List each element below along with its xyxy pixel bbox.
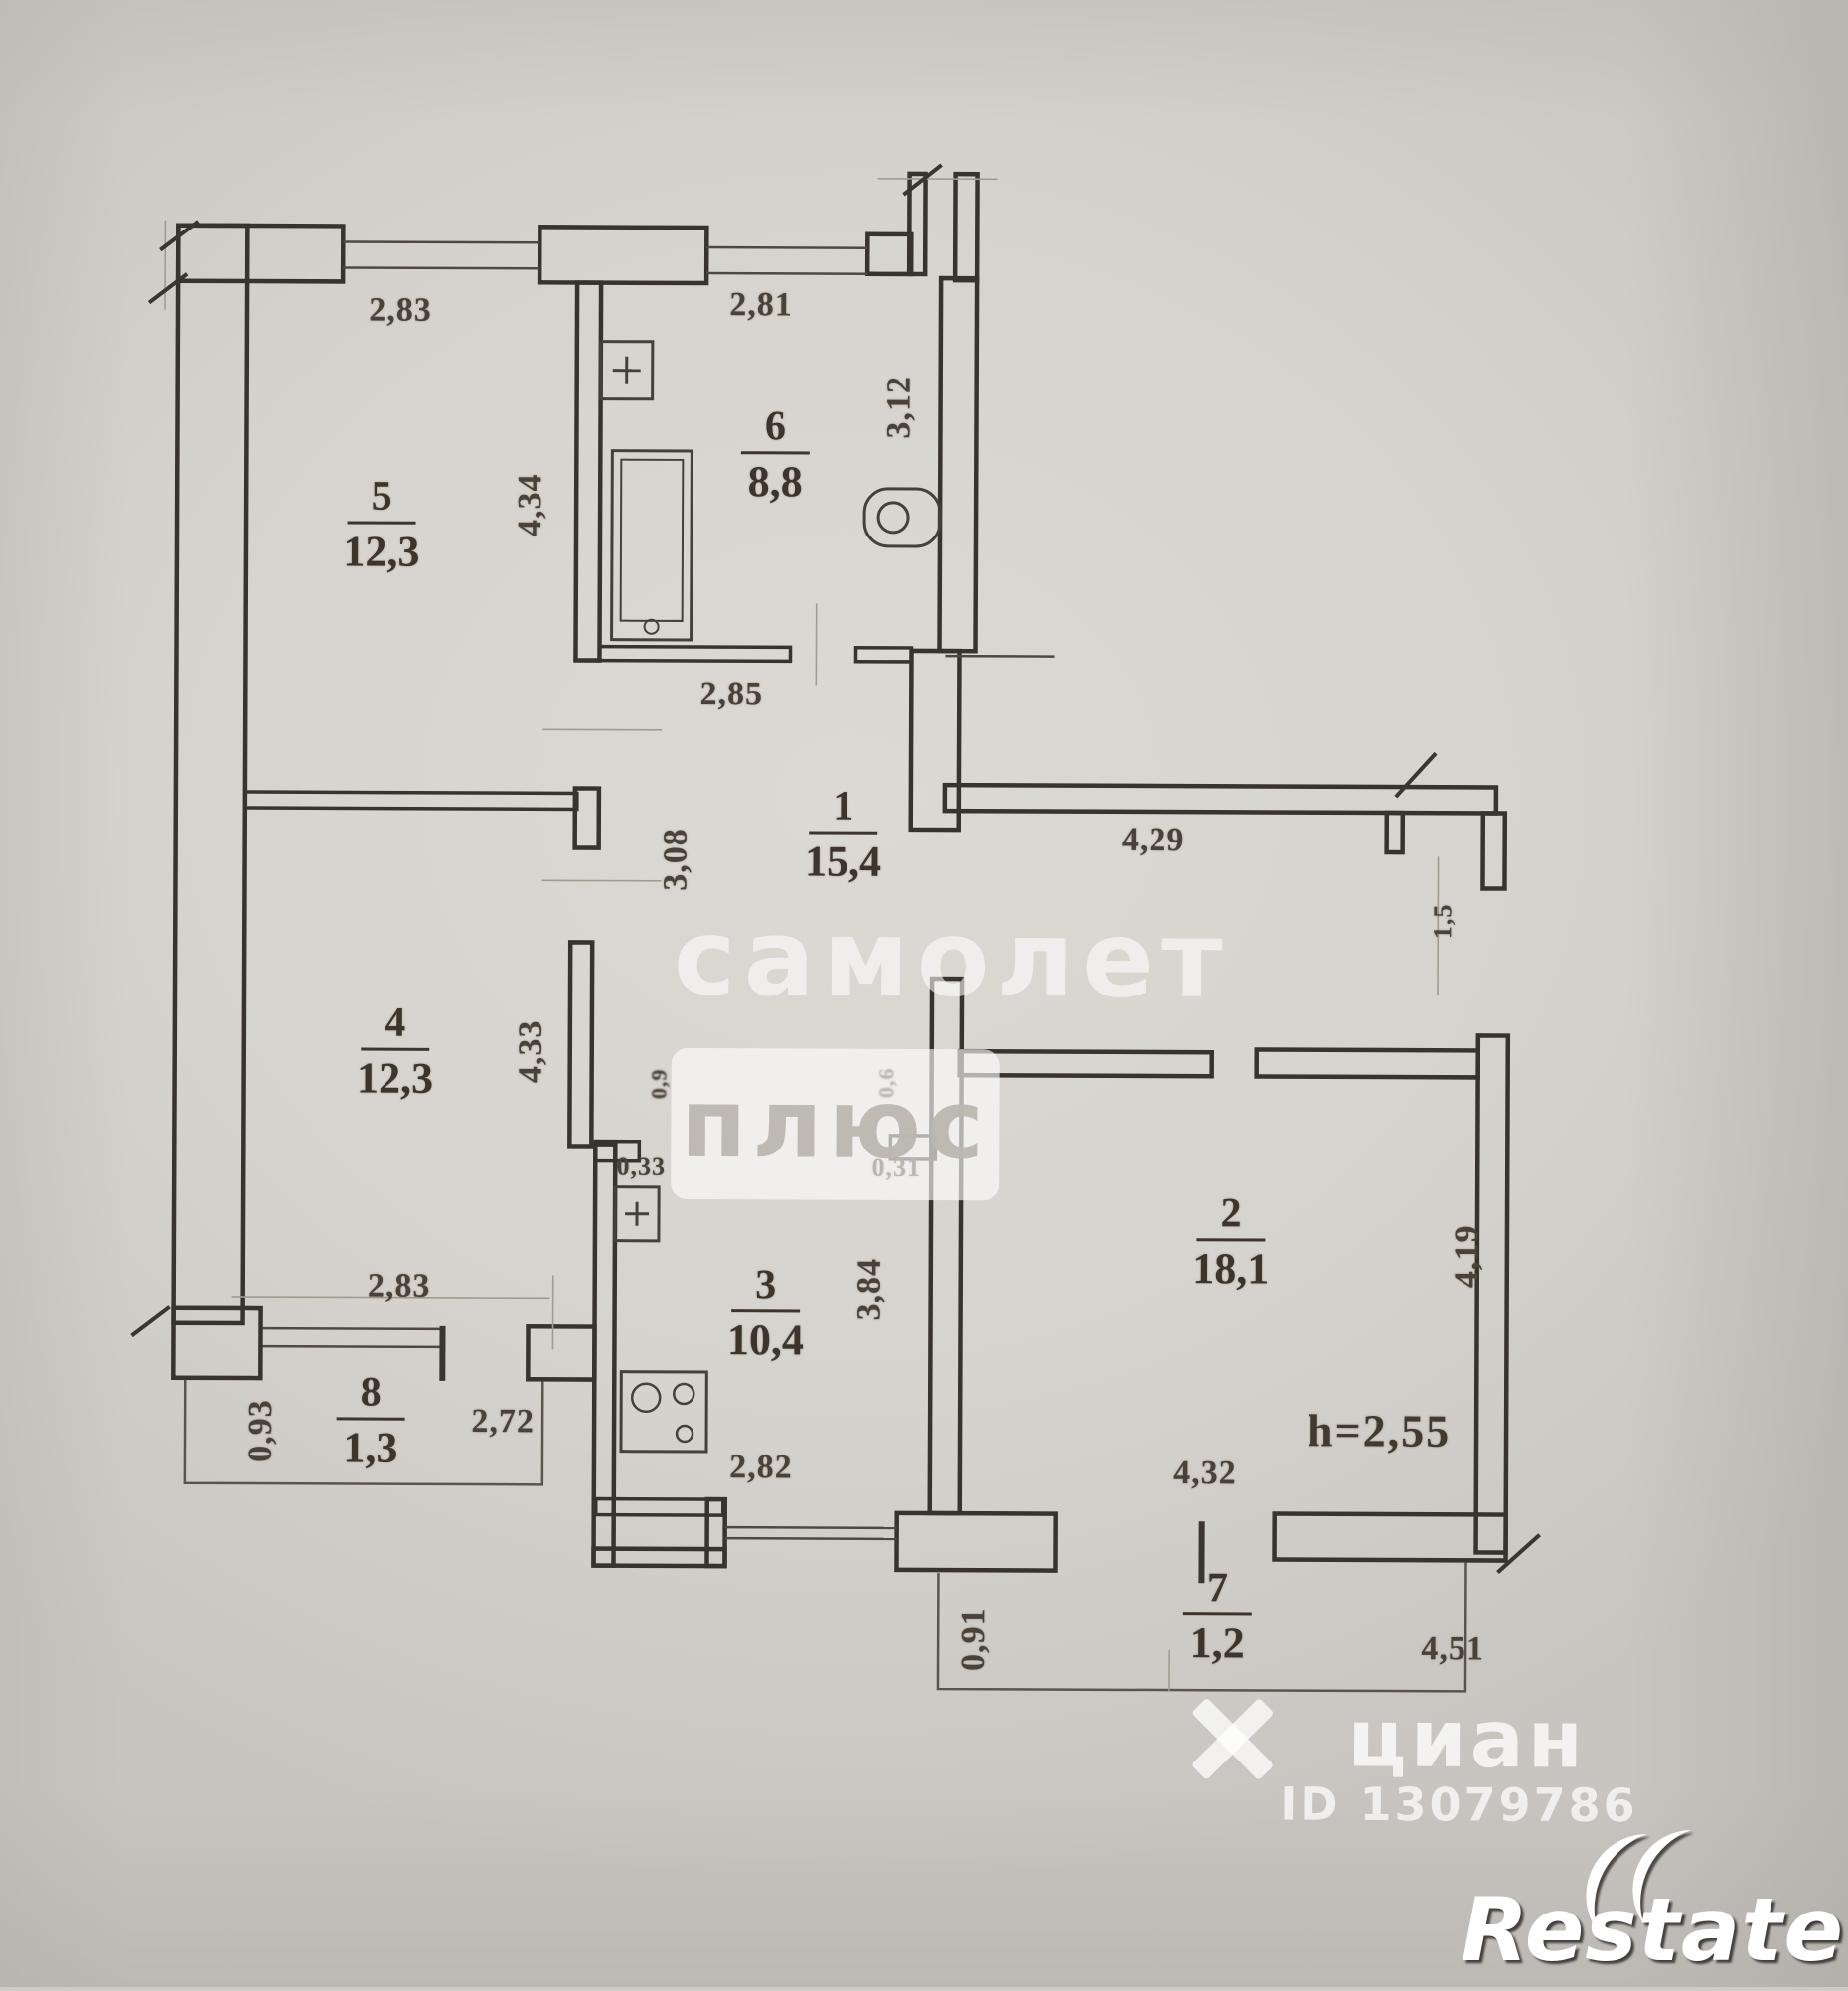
wall	[1387, 813, 1403, 852]
restate-wordmark: Restate	[1461, 1879, 1844, 1981]
room-4-area: 12,3	[357, 1051, 433, 1104]
dim-kitchen-stub-left: 0,33	[616, 1152, 666, 1182]
room-3-area: 10,4	[727, 1312, 804, 1365]
room-6-label: 6 8,8	[741, 404, 810, 507]
room-2-number: 2	[1196, 1191, 1265, 1241]
room-3-number: 3	[731, 1263, 800, 1312]
window	[706, 273, 867, 274]
room-2-area: 18,1	[1192, 1241, 1269, 1294]
wall	[945, 785, 1496, 813]
window	[725, 1538, 897, 1539]
dim-balcony8-bottom: 2,72	[471, 1403, 535, 1441]
room-6-number: 6	[741, 404, 810, 454]
window	[725, 1527, 897, 1528]
wall	[1482, 813, 1504, 888]
dim-hallway-top: 4,29	[1122, 822, 1185, 859]
dim-room2-side: 4,19	[1449, 1225, 1486, 1289]
dim-room6-top: 2,81	[729, 286, 793, 324]
tick	[149, 274, 187, 303]
window	[262, 1346, 445, 1347]
kitchen-sink	[615, 1187, 659, 1241]
dim-balcony8-side: 0,93	[242, 1399, 280, 1462]
wall	[173, 1308, 260, 1378]
floor-plan: 5 12,3 6 8,8 1 15,4 4 12,3 2 18,1 3 10,4…	[0, 0, 1848, 1991]
room-5-number: 5	[348, 474, 416, 524]
ceiling-height-label: h=2,55	[1308, 1404, 1452, 1457]
tick	[1396, 753, 1436, 797]
room-7-area: 1,2	[1183, 1615, 1252, 1668]
room-6-area: 8,8	[741, 454, 810, 507]
dim-room2-bottom: 4,32	[1173, 1455, 1237, 1492]
window	[706, 247, 867, 248]
room-8-area: 1,3	[336, 1421, 404, 1473]
room-1-label: 1 15,4	[805, 784, 881, 886]
room-2-label: 2 18,1	[1192, 1191, 1269, 1294]
dim-room5-side: 4,34	[512, 473, 549, 536]
watermark-plus: плюс	[681, 1068, 990, 1180]
room-4-number: 4	[361, 1001, 429, 1051]
wall	[174, 226, 248, 1323]
dim-room6-side: 3,12	[880, 376, 918, 439]
wall	[569, 942, 592, 1146]
wall	[855, 648, 911, 662]
room-7-number: 7	[1183, 1566, 1252, 1615]
restate-logo: Restate	[1530, 1828, 1848, 1987]
dim-bath-bottom: 2,85	[699, 676, 763, 713]
room-7-label: 7 1,2	[1183, 1566, 1252, 1668]
window	[343, 267, 539, 268]
watermark-samolet: самолет	[673, 896, 1230, 1020]
wall	[1257, 1049, 1478, 1077]
wall	[1476, 1035, 1508, 1552]
dim-room4-bottom: 2,83	[368, 1268, 431, 1305]
room-8-label: 8 1,3	[336, 1370, 404, 1472]
window	[343, 241, 539, 242]
room-3-label: 3 10,4	[727, 1263, 804, 1365]
wall	[955, 174, 977, 280]
room-1-number: 1	[809, 784, 877, 834]
dim-room5-top: 2,83	[369, 292, 432, 330]
wall	[599, 647, 790, 662]
wall	[896, 1513, 1055, 1571]
dim-right-opening: 1,5	[1428, 903, 1458, 939]
wall	[539, 227, 706, 283]
wall	[245, 792, 577, 809]
wall	[178, 226, 343, 282]
watermark-cian-logo-icon	[1185, 1690, 1281, 1785]
dim-kitchen-side: 3,84	[851, 1258, 889, 1321]
watermark-cian-id: ID 13079786	[1280, 1777, 1638, 1833]
dim-kitchen-bottom: 2,82	[729, 1449, 793, 1486]
watermark-cian: циан	[1347, 1692, 1587, 1785]
washbasin	[601, 342, 653, 399]
stove	[621, 1372, 706, 1452]
room-1-area: 15,4	[805, 835, 881, 887]
room-4-label: 4 12,3	[357, 1001, 433, 1104]
dim-balcony7-bottom: 4,51	[1421, 1630, 1484, 1668]
wall	[1275, 1514, 1506, 1561]
dim-room4-side: 4,33	[513, 1019, 550, 1083]
dim-balcony7-side: 0,91	[955, 1608, 993, 1671]
wall	[940, 278, 978, 651]
wall	[575, 282, 601, 660]
room-5-label: 5 12,3	[343, 474, 419, 576]
room-5-area: 12,3	[343, 525, 419, 577]
bathtub	[612, 451, 693, 640]
scanned-floor-plan: 5 12,3 6 8,8 1 15,4 4 12,3 2 18,1 3 10,4…	[0, 0, 1848, 1987]
window	[263, 1328, 446, 1329]
toilet	[864, 489, 940, 546]
wall	[911, 651, 960, 830]
room-8-number: 8	[337, 1370, 405, 1420]
wall	[867, 234, 911, 274]
dim-niche-left: 0,9	[647, 1069, 673, 1100]
watermark-plus-band: плюс	[671, 1048, 1000, 1200]
wall	[528, 1326, 594, 1379]
tick	[131, 1307, 169, 1336]
dim-corridor-side: 3,08	[657, 828, 694, 891]
